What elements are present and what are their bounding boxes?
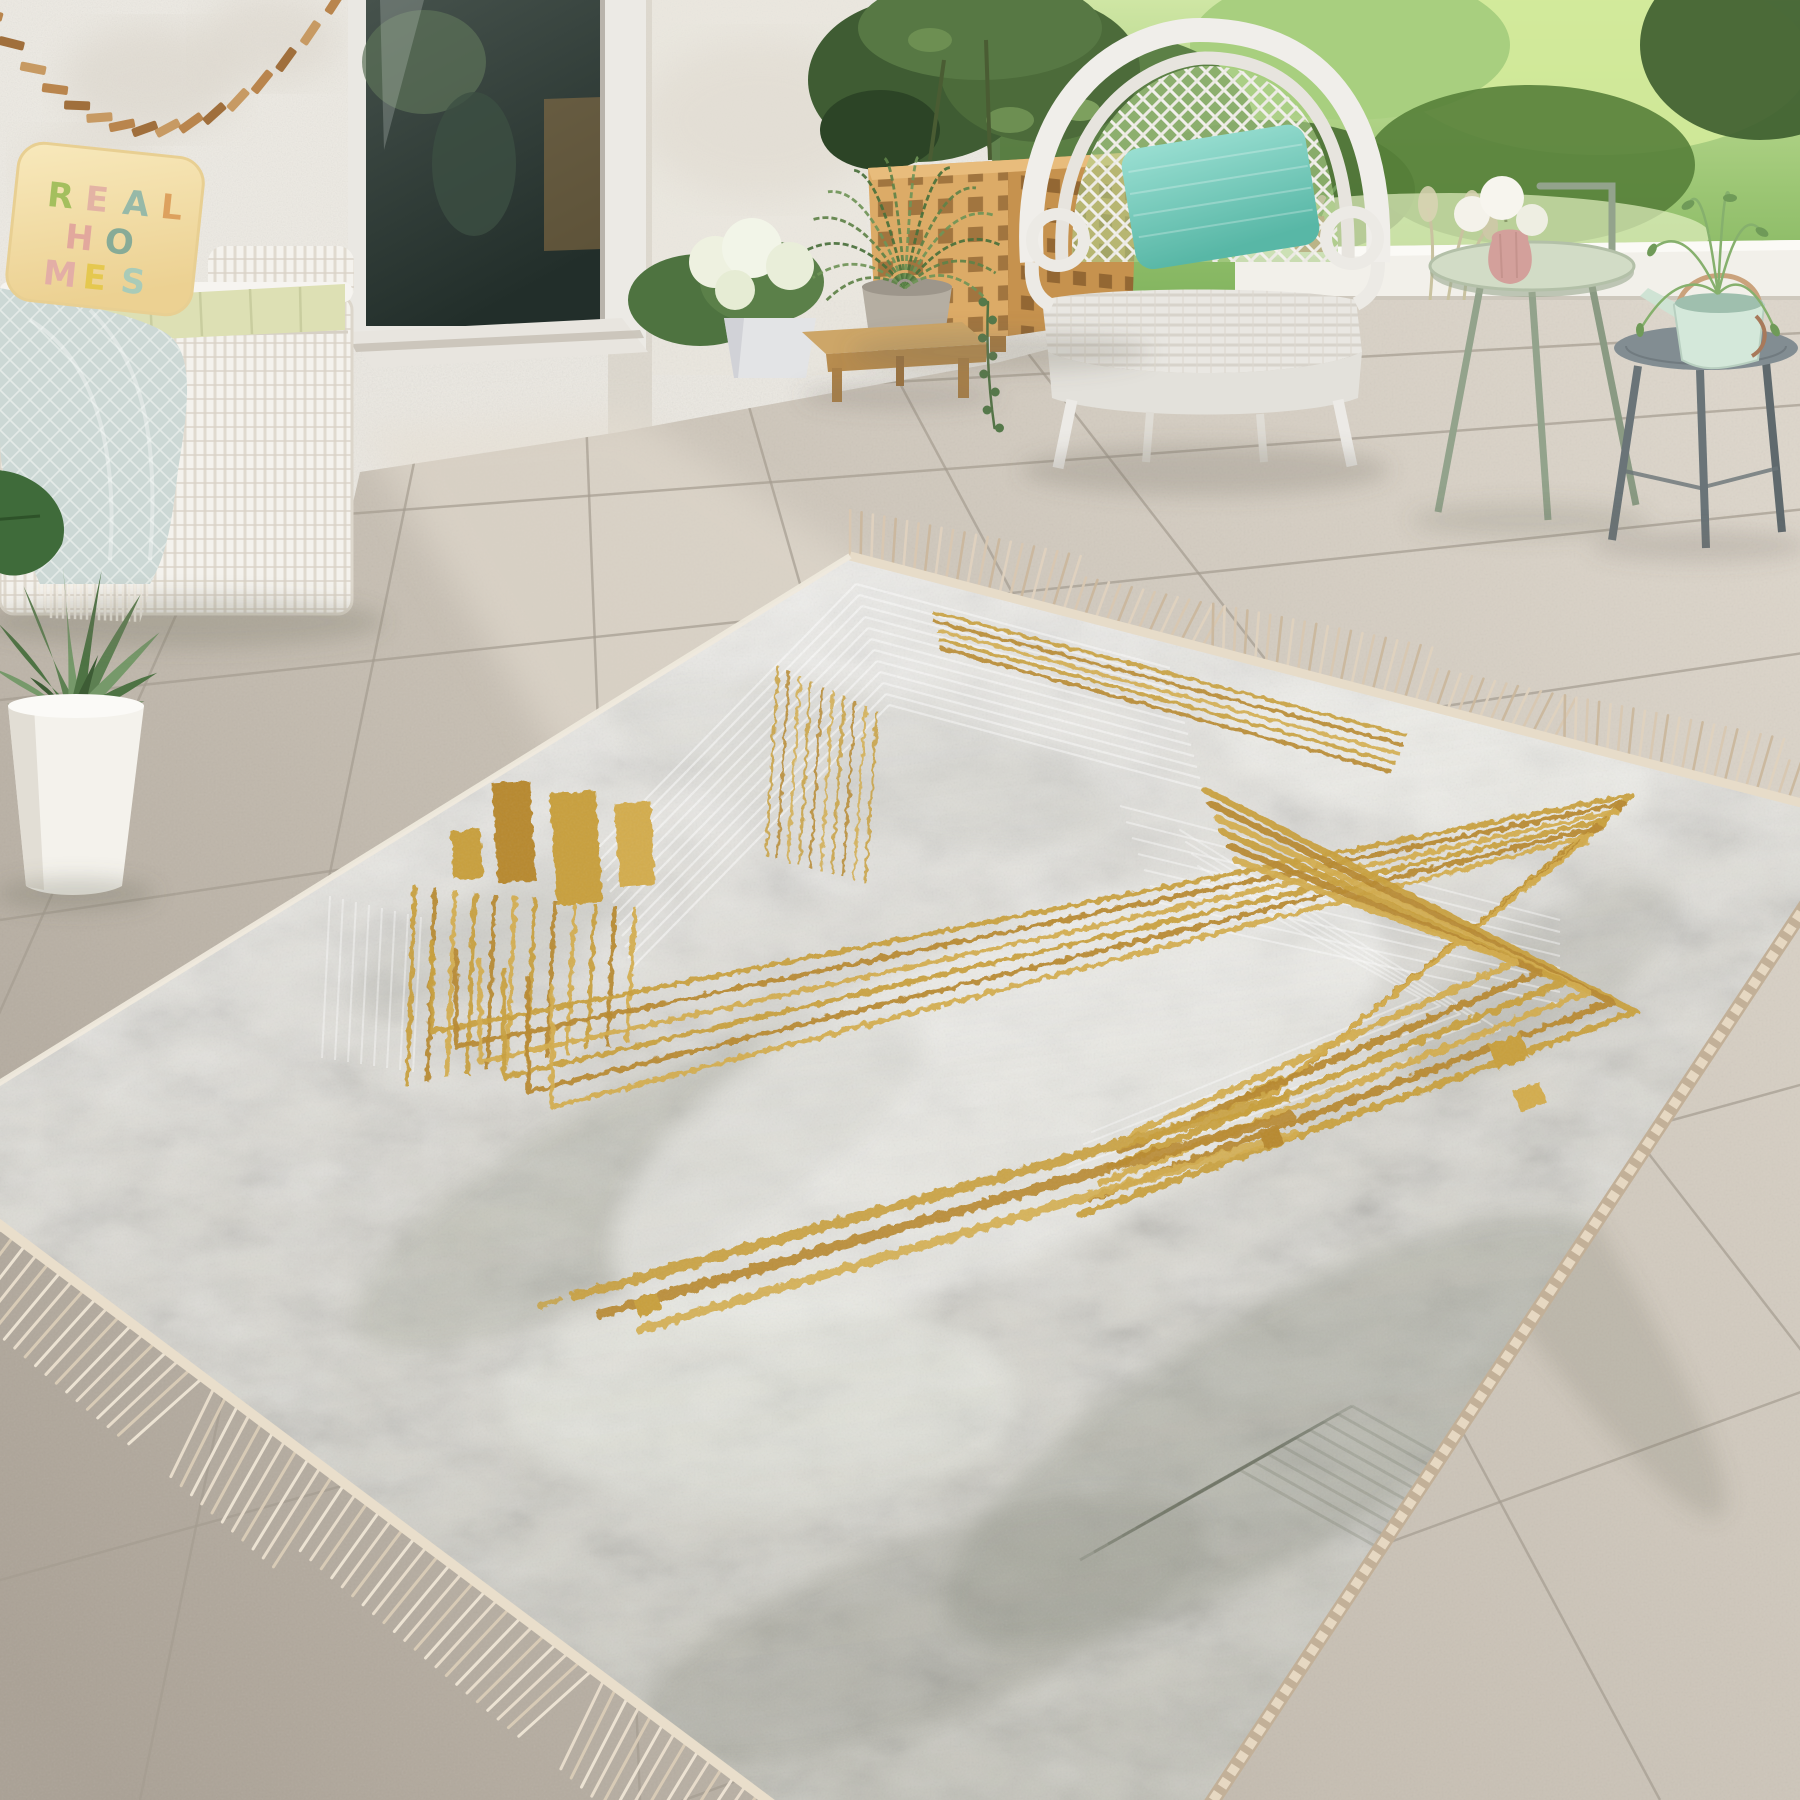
real-homes-pillow: R E A L H O M E S — [4, 141, 205, 318]
scene-canvas: R E A L H O M E S — [0, 0, 1800, 1800]
wicker-armchair — [1031, 30, 1378, 468]
table-top — [1430, 242, 1634, 290]
sliding-glass-door — [348, 0, 648, 368]
pink-vase — [1488, 230, 1532, 285]
crate-reflection — [544, 97, 602, 251]
patio-scene: R E A L H O M E S — [0, 0, 1800, 1800]
